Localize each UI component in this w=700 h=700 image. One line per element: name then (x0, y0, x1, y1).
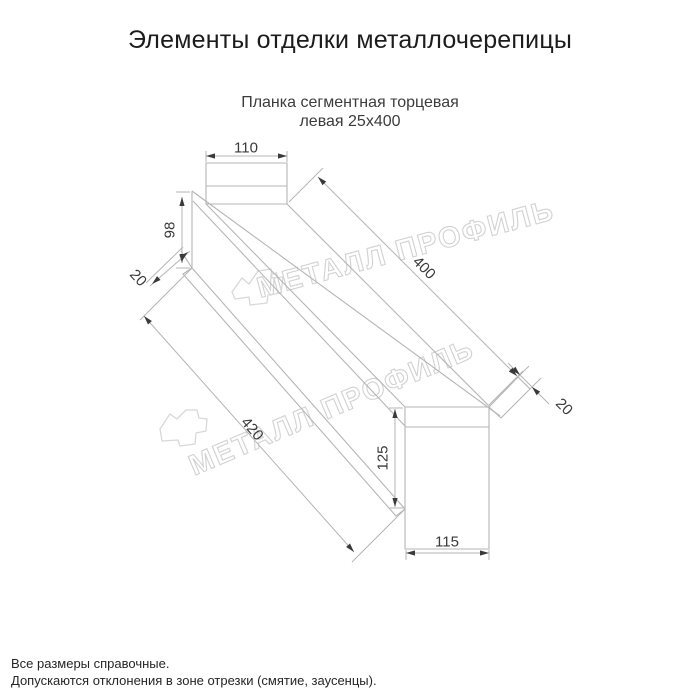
dimension-arrows (144, 153, 540, 555)
footer-note-2: Допускаются отклонения в зоне отрезки (с… (11, 673, 377, 688)
dim-label-left-height: 98 (162, 222, 179, 239)
dim-label-top-width: 110 (234, 140, 258, 157)
footer-note-1: Все размеры справочные. (11, 656, 169, 671)
brand-logo-lower (160, 410, 207, 446)
dimension-lines (140, 151, 549, 562)
page: Элементы отделки металлочерепицы Планка … (0, 0, 700, 700)
technical-drawing (0, 0, 700, 700)
part-outline (181, 163, 530, 549)
dim-label-bottom-width: 115 (435, 534, 459, 551)
dim-label-right-height: 125 (375, 445, 392, 470)
